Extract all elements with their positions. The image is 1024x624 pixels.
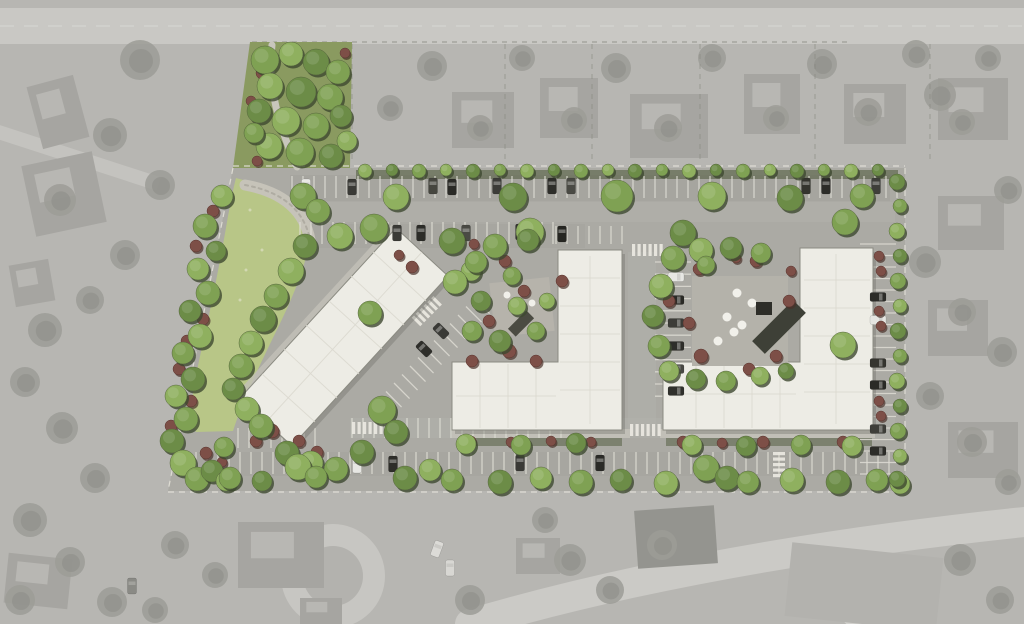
parked-car (393, 225, 402, 241)
car-windshield (463, 229, 470, 233)
shrub (683, 317, 695, 329)
crosswalk-stripe (638, 244, 641, 256)
aerial-tree-shade (17, 374, 35, 392)
tree-highlight (895, 400, 902, 407)
tree-highlight (673, 223, 686, 236)
tree-highlight (290, 141, 304, 155)
tree-highlight (296, 236, 308, 248)
tree-highlight (846, 165, 853, 172)
aerial-tree-shade (21, 511, 41, 531)
tree-highlight (829, 472, 841, 484)
tree-highlight (496, 165, 502, 171)
tree-highlight (330, 226, 343, 239)
tree-highlight (364, 217, 378, 231)
car-windshield (549, 182, 556, 186)
aerial-tree-shade (1001, 475, 1017, 491)
tree-highlight (550, 165, 556, 171)
lawn-speckle (249, 209, 252, 212)
crosswalk-stripe (773, 458, 785, 461)
tree-highlight (225, 380, 236, 391)
tree-highlight (238, 399, 250, 411)
tree-highlight (685, 437, 695, 447)
tree-highlight (386, 187, 399, 200)
hedge (356, 170, 898, 179)
tree-highlight (309, 201, 321, 213)
tree-highlight (651, 337, 662, 348)
shrub (876, 266, 886, 276)
tree-highlight (320, 87, 333, 100)
tree-highlight (891, 375, 899, 383)
tree-highlight (361, 303, 373, 315)
car-body (417, 225, 426, 241)
tree-highlight (267, 286, 279, 298)
crosswalk-stripe (647, 424, 650, 436)
aerial-tree-shade (53, 419, 72, 438)
car-windshield (449, 183, 456, 187)
tree-highlight (232, 356, 244, 368)
crosswalk-stripe (636, 424, 639, 436)
car-windshield (394, 229, 401, 233)
shrub (394, 250, 404, 260)
car-windshield (597, 459, 604, 463)
tree-highlight (459, 436, 469, 446)
aerial-tree-shade (515, 51, 531, 67)
aerial-tree-shade (661, 121, 678, 138)
crosswalk-stripe (649, 244, 652, 256)
tree-highlight (255, 473, 265, 483)
car-windshield (568, 182, 575, 186)
shrub (556, 275, 568, 287)
tree-highlight (442, 231, 455, 244)
crosswalk-stripe (632, 244, 635, 256)
tree-highlight (182, 302, 193, 313)
tree-highlight (541, 295, 549, 303)
aerial-tree-shade (931, 86, 950, 105)
tree-highlight (719, 373, 729, 383)
tree-highlight (874, 165, 880, 171)
tree-highlight (645, 307, 656, 318)
parked-car (596, 455, 605, 471)
tree-highlight (895, 200, 902, 207)
car-windshield (418, 229, 425, 233)
car-windshield (390, 460, 397, 464)
shrub (466, 355, 478, 367)
patio-umbrella (723, 313, 732, 322)
aerial-tree-shade (168, 538, 185, 555)
aerial-tree-shade (538, 513, 554, 529)
bg-house (516, 538, 560, 574)
car-windshield (879, 448, 883, 455)
tree-highlight (204, 462, 215, 473)
tree-highlight (422, 461, 433, 472)
tree-highlight (260, 76, 273, 89)
tree-highlight (869, 471, 880, 482)
tree-highlight (630, 165, 637, 172)
car-windshield (494, 182, 501, 186)
crosswalk-stripe (773, 463, 785, 466)
parked-car (548, 178, 557, 194)
tree-highlight (199, 283, 211, 295)
aerial-tree-shade (424, 58, 442, 76)
tree-highlight (327, 459, 339, 471)
aerial-tree-shade (861, 105, 878, 122)
tree-highlight (684, 165, 691, 172)
site-plan-aerial-view (0, 0, 1024, 624)
aerial-tree-shade (567, 113, 583, 129)
tree-highlight (329, 62, 341, 74)
tree-highlight (278, 443, 290, 455)
tree-highlight (664, 248, 676, 260)
car-body (567, 178, 576, 194)
tree-highlight (188, 469, 200, 481)
tree-highlight (702, 185, 716, 199)
car-body (870, 359, 886, 368)
tree-highlight (696, 458, 709, 471)
tree-highlight (252, 416, 264, 428)
tree-highlight (845, 438, 855, 448)
parked-car (348, 179, 357, 195)
car-windshield (677, 320, 681, 327)
parked-car (429, 178, 438, 194)
bg-sport-court (634, 505, 718, 568)
shrub (874, 251, 884, 261)
aerial-tree-shade (955, 305, 972, 322)
tree-highlight (572, 472, 584, 484)
tree-highlight (353, 442, 365, 454)
parked-car (558, 226, 567, 242)
aerial-tree-shade (473, 121, 489, 137)
tree-highlight (753, 369, 762, 378)
car-windshield (129, 582, 136, 586)
aerial-tree-shade (561, 551, 580, 570)
tree-highlight (522, 165, 529, 172)
tree-highlight (217, 439, 227, 449)
tree-highlight (718, 468, 730, 480)
tree-highlight (444, 471, 455, 482)
tree-highlight (288, 457, 301, 470)
shrub (876, 321, 886, 331)
patio-umbrella (714, 337, 723, 346)
parked-car (870, 447, 886, 456)
shrub (770, 350, 782, 362)
tree-highlight (783, 470, 795, 482)
tree-highlight (190, 260, 201, 271)
crosswalk-stripe (643, 244, 646, 256)
car-windshield (803, 182, 810, 186)
bg-house (938, 196, 1004, 250)
parked-car (668, 319, 684, 328)
lawn-speckle (245, 269, 248, 272)
car-windshield (823, 182, 830, 186)
aerial-tree-shade (12, 592, 30, 610)
site-plan-canvas (0, 0, 1024, 624)
crosswalk-stripe (352, 422, 355, 434)
car-windshield (517, 459, 524, 463)
aerial-tree-shade (654, 537, 672, 555)
tree-highlight (658, 165, 664, 171)
crosswalk-stripe (773, 452, 785, 455)
car-body (668, 387, 684, 396)
crosswalk-stripe (369, 422, 372, 434)
bg-house-roof-ridge (752, 83, 780, 107)
shrub (340, 48, 350, 58)
tree-highlight (468, 253, 479, 264)
aerial-tree-shade (462, 592, 480, 610)
bg-house-roof-ridge (251, 532, 294, 558)
tree-highlight (895, 300, 902, 307)
tree-highlight (340, 133, 350, 143)
parked-car (446, 560, 455, 576)
aerial-tree-shade (814, 56, 832, 74)
tree-highlight (723, 239, 734, 250)
tree-highlight (891, 225, 899, 233)
bg-house-roof-ridge (948, 204, 981, 226)
car-body (870, 447, 886, 456)
tree-highlight (689, 371, 699, 381)
tree-highlight (168, 387, 179, 398)
tree-highlight (388, 165, 394, 171)
shrub (530, 355, 542, 367)
tree-highlight (191, 326, 203, 338)
shrub (874, 306, 884, 316)
aerial-tree-shade (608, 60, 626, 78)
tree-highlight (576, 165, 583, 172)
tree-highlight (604, 165, 610, 171)
tree-highlight (372, 399, 386, 413)
tree-highlight (177, 409, 189, 421)
tree-highlight (794, 437, 804, 447)
tree-highlight (173, 453, 186, 466)
car-windshield (677, 274, 681, 281)
tree-highlight (692, 240, 704, 252)
tree-highlight (895, 250, 902, 257)
aerial-tree-shade (101, 126, 121, 146)
crosswalk-stripe (652, 424, 655, 436)
tree-highlight (465, 323, 475, 333)
crosswalk-stripe (658, 424, 661, 436)
tree-highlight (196, 216, 208, 228)
tree-highlight (442, 165, 448, 171)
tree-highlight (833, 335, 846, 348)
car-windshield (430, 182, 437, 186)
aerial-tree-shade (923, 389, 940, 406)
aerial-tree-shade (955, 115, 971, 131)
aerial-tree-shade (769, 111, 785, 127)
tree-highlight (780, 365, 788, 373)
tree-highlight (529, 324, 538, 333)
aerial-tree-shade (148, 603, 164, 619)
parked-car (567, 178, 576, 194)
bg-house-roof-ridge (16, 267, 39, 287)
tree-highlight (895, 450, 902, 457)
car-body (558, 226, 567, 242)
tree-highlight (209, 243, 219, 253)
tree-highlight (396, 468, 408, 480)
bg-house (300, 598, 342, 624)
crosswalk-stripe (358, 422, 361, 434)
aerial-tree-shade (951, 551, 970, 570)
tree-highlight (492, 332, 503, 343)
tree-highlight (835, 212, 848, 225)
tree-highlight (892, 325, 900, 333)
tree-highlight (533, 469, 544, 480)
crosswalk-stripe (363, 422, 366, 434)
tree-highlight (290, 80, 305, 95)
car-windshield (873, 182, 880, 186)
tree-highlight (503, 186, 517, 200)
shrub (757, 436, 769, 448)
tree-highlight (891, 176, 899, 184)
tree-highlight (293, 186, 306, 199)
patio-umbrella (733, 289, 742, 298)
parked-car (870, 381, 886, 390)
car-windshield (879, 426, 883, 433)
car-windshield (447, 564, 454, 568)
parked-car (448, 179, 457, 195)
car-body (128, 578, 137, 594)
tree-highlight (892, 275, 900, 283)
shrub (546, 436, 556, 446)
car-windshield (677, 388, 681, 395)
aerial-tree-shade (993, 593, 1010, 610)
aerial-tree-shade (916, 253, 935, 272)
tree-highlight (281, 261, 294, 274)
car-windshield (677, 297, 681, 304)
tree-highlight (754, 245, 764, 255)
aerial-tree-shade (909, 47, 926, 64)
car-windshield (879, 360, 883, 367)
tree-highlight (474, 293, 484, 303)
aerial-tree-shade (51, 191, 70, 210)
tree-highlight (662, 363, 672, 373)
crosswalk-stripe (641, 424, 644, 436)
car-body (348, 179, 357, 195)
tree-highlight (605, 183, 621, 199)
shrub (469, 239, 479, 249)
aerial-tree-shade (36, 321, 56, 341)
car-body (429, 178, 438, 194)
car-windshield (349, 183, 356, 187)
aerial-tree-shade (705, 51, 722, 68)
aerial-tree-shade (129, 49, 153, 73)
tree-highlight (247, 125, 257, 135)
tree-highlight (308, 468, 319, 479)
bg-house (238, 522, 324, 588)
tree-highlight (276, 110, 290, 124)
tree-highlight (891, 473, 899, 481)
tree-highlight (657, 473, 669, 485)
tree-highlight (514, 437, 524, 447)
tree-highlight (491, 472, 503, 484)
tree-highlight (253, 309, 266, 322)
patio-umbrella (748, 299, 757, 308)
lawn-speckle (261, 249, 264, 252)
tree-highlight (613, 471, 624, 482)
tree-highlight (387, 422, 399, 434)
site-plan-layers (0, 0, 1024, 624)
tree-highlight (322, 146, 334, 158)
parked-car (870, 293, 886, 302)
patio-table (504, 292, 511, 299)
aerial-tree-shade (117, 247, 135, 265)
tree-highlight (468, 165, 475, 172)
car-windshield (559, 230, 566, 234)
bg-house-roof-ridge (15, 561, 49, 584)
tree-highlight (446, 272, 458, 284)
shrub (483, 315, 495, 327)
parked-car (822, 178, 831, 194)
aerial-tree-shade (383, 101, 399, 117)
tree-highlight (250, 101, 262, 113)
car-body (870, 381, 886, 390)
tree-highlight (242, 333, 254, 345)
car-body (548, 178, 557, 194)
tree-highlight (255, 49, 269, 63)
tree-highlight (360, 165, 367, 172)
tree-highlight (820, 165, 826, 171)
tree-highlight (766, 165, 772, 171)
car-body (446, 560, 455, 576)
aerial-tree-shade (981, 51, 997, 67)
tree-highlight (712, 165, 718, 171)
shrub (876, 411, 886, 421)
shrub (190, 240, 202, 252)
tree-highlight (520, 231, 531, 242)
parked-car (870, 425, 886, 434)
car-body (870, 293, 886, 302)
car-windshield (677, 343, 681, 350)
patio-umbrella (730, 328, 739, 337)
shrub (406, 261, 418, 273)
patio-umbrella (738, 321, 747, 330)
car-windshield (879, 382, 883, 389)
bg-house-roof-ridge (306, 602, 327, 612)
shrub (786, 266, 796, 276)
car-body (870, 425, 886, 434)
shrub (252, 156, 262, 166)
parked-car (870, 359, 886, 368)
tree-highlight (306, 116, 319, 129)
shrub (783, 295, 795, 307)
shrub (694, 349, 708, 363)
tree-highlight (486, 236, 498, 248)
tree-highlight (740, 473, 751, 484)
tree-highlight (414, 165, 421, 172)
shrub (717, 438, 727, 448)
parked-car (128, 578, 137, 594)
aerial-tree-shade (603, 583, 620, 600)
aerial-tree-shade (1001, 183, 1018, 200)
car-body (802, 178, 811, 194)
tree-highlight (175, 344, 186, 355)
tree-highlight (214, 187, 225, 198)
tree-highlight (699, 258, 708, 267)
tree-highlight (163, 431, 175, 443)
shrub (518, 285, 530, 297)
tree-highlight (780, 188, 793, 201)
crosswalk-stripe (630, 424, 633, 436)
aerial-tree-shade (964, 434, 982, 452)
tree-highlight (510, 299, 519, 308)
tree-highlight (222, 469, 233, 480)
aerial-tree-shade (83, 293, 100, 310)
crosswalk-stripe (654, 244, 657, 256)
bg-house-roof-ridge (523, 543, 545, 557)
aerial-tree-shade (994, 344, 1012, 362)
car-body (596, 455, 605, 471)
tree-highlight (306, 52, 319, 65)
tree-highlight (282, 44, 294, 56)
